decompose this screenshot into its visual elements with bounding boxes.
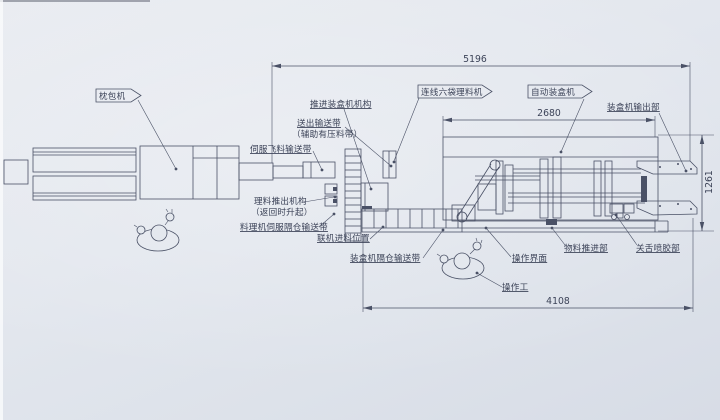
dim-overall-length: 5196 (463, 54, 487, 65)
operator-figure-left (134, 209, 179, 251)
arranger-ladder-conveyor (325, 149, 396, 241)
flag-auto-cartoner: 自动装盒机 (531, 86, 575, 98)
label-pushout-note: （返回时升起） (251, 206, 313, 218)
dimension-width-1261: 1261 (658, 135, 715, 231)
material-pusher-block (546, 219, 557, 225)
flag-inline-arranger: 连线六袋理料机 (421, 86, 483, 98)
carton-magazine-arm (452, 160, 500, 222)
dim-line-length: 4108 (546, 296, 570, 307)
pillow-packer-machine (4, 146, 239, 200)
dim-machine-width: 1261 (704, 170, 715, 194)
label-operation-interface: 操作界面 (512, 252, 547, 264)
label-cartoner-compartment-belt: 装盒机隔仓输送带 (350, 252, 421, 264)
cartoner-mechanism (452, 157, 647, 225)
label-cartoner-output: 装盒机输出部 (607, 101, 660, 113)
flag-pillow-packer: 枕包机 (99, 90, 126, 102)
label-outfeed-belt-note: （辅助有压料带） (292, 128, 362, 140)
label-servo-compartment-belt: 料理机伺服隔仓输送带 (240, 221, 328, 233)
compartment-conveyor (362, 209, 668, 232)
label-pushout-mechanism: 理料推出机构 (254, 195, 307, 207)
machine-layout-drawing: 5196 2680 4108 1261 (0, 0, 720, 420)
blueprint-svg: 5196 2680 4108 1261 (0, 0, 720, 420)
label-material-pusher: 物料推进部 (564, 242, 608, 254)
label-tongue-glue-unit: 关舌喷胶部 (636, 242, 680, 254)
label-outfeed-belt: 送出输送带 (297, 117, 341, 129)
label-push-mechanism: 推进装盒机机构 (310, 98, 372, 110)
rail-end-plate (641, 176, 647, 202)
servo-fly-conveyor (239, 162, 335, 180)
label-servo-fly-belt: 伺服飞料输送带 (250, 143, 312, 155)
label-inline-infeed-position: 联机进料位置 (317, 232, 370, 244)
dim-cartoner-length: 2680 (537, 108, 561, 119)
glue-applicator (610, 204, 634, 220)
label-operator: 操作工 (502, 281, 529, 293)
